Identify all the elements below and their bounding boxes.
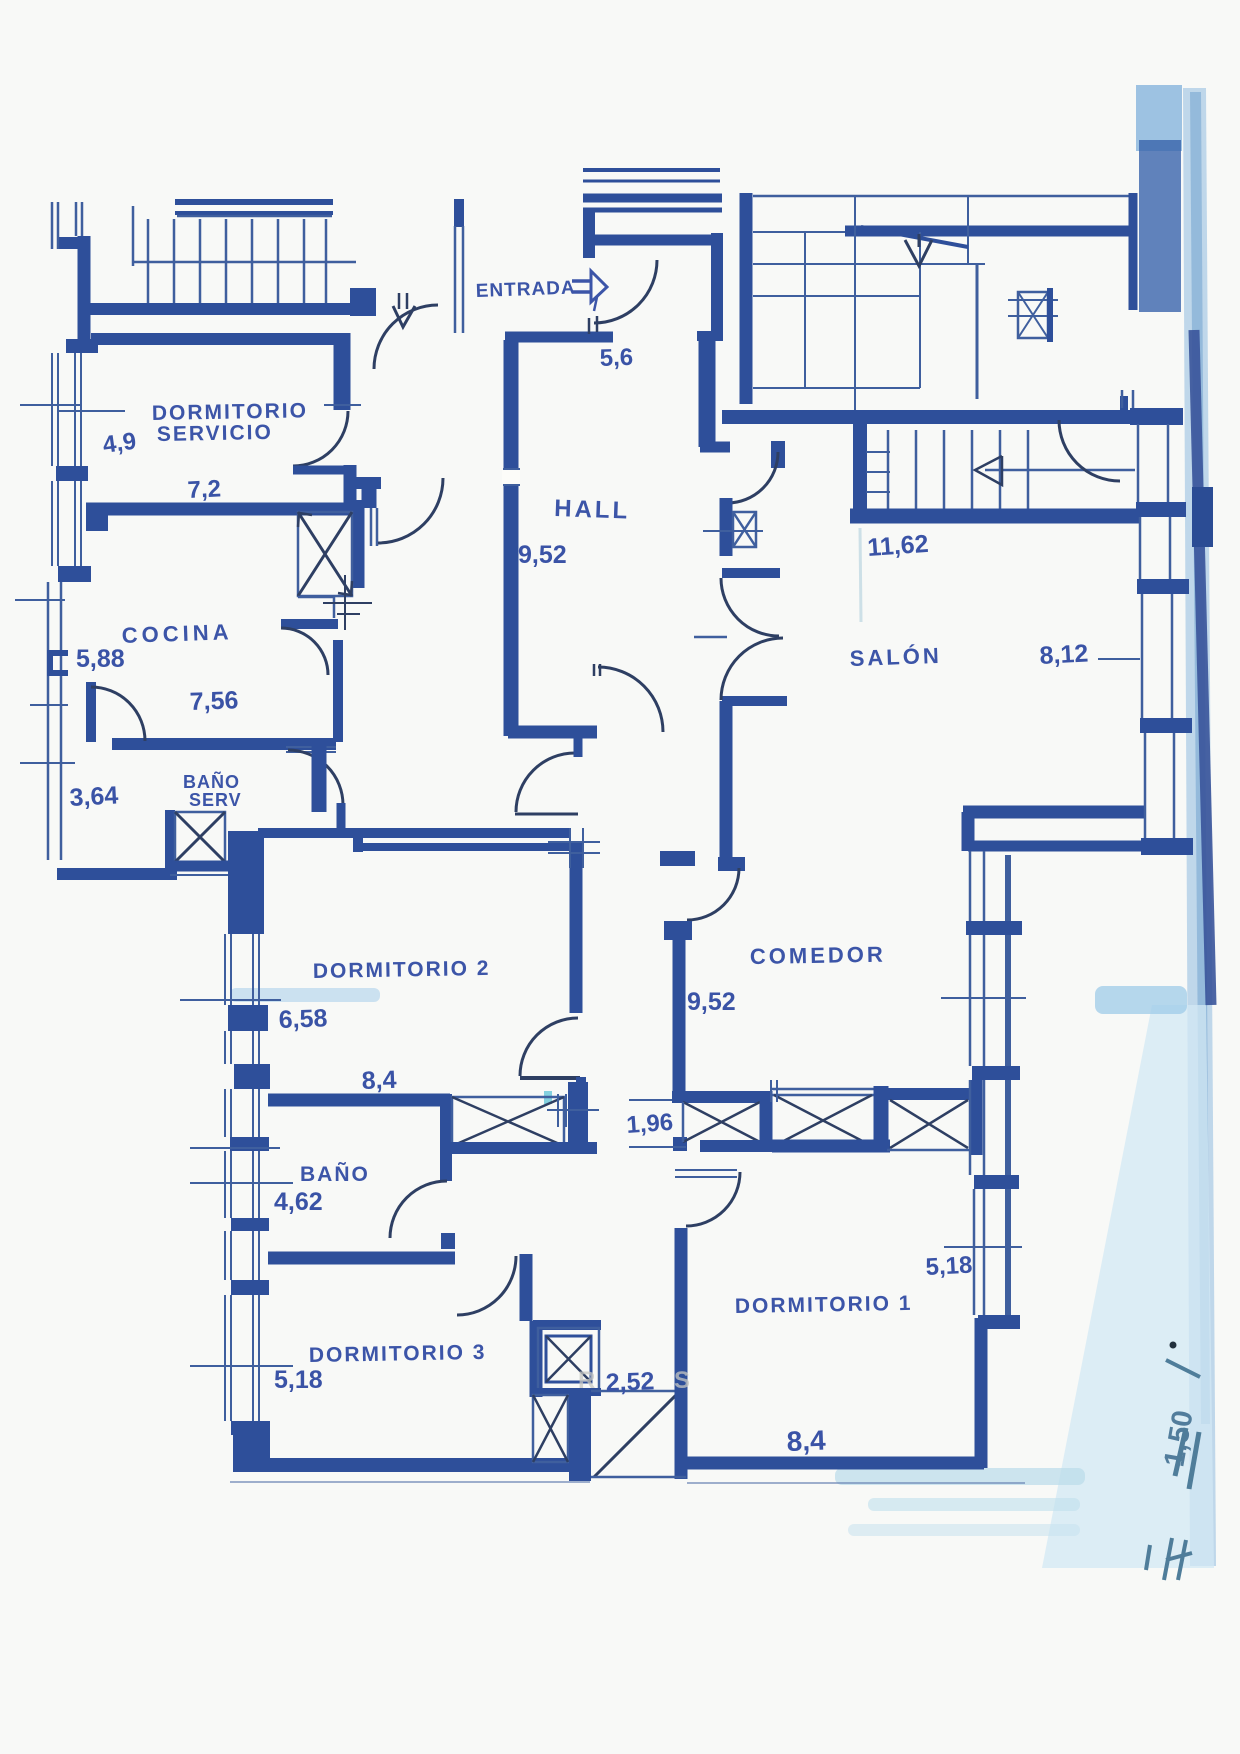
svg-text:2,52: 2,52 [605, 1367, 655, 1397]
svg-text:9,52: 9,52 [687, 988, 736, 1016]
svg-text:1,96: 1,96 [626, 1109, 674, 1139]
svg-text:R: R [578, 1367, 595, 1394]
svg-text:6,58: 6,58 [278, 1004, 328, 1034]
svg-text:DORMITORIO 2: DORMITORIO 2 [313, 957, 491, 983]
svg-text:11,62: 11,62 [866, 530, 929, 562]
svg-text:4,62: 4,62 [274, 1188, 323, 1216]
svg-text:COCINA: COCINA [121, 619, 233, 648]
svg-text:SALÓN: SALÓN [849, 643, 942, 671]
svg-text:3,64: 3,64 [69, 781, 119, 812]
svg-text:HALL: HALL [554, 495, 631, 525]
svg-text:DORMITORIO 1: DORMITORIO 1 [735, 1292, 913, 1318]
svg-text:5,88: 5,88 [76, 645, 125, 673]
svg-text:BAÑO: BAÑO [300, 1163, 370, 1186]
svg-text:8,12: 8,12 [1039, 639, 1089, 670]
svg-text:5,6: 5,6 [599, 344, 633, 372]
svg-text:BAÑO: BAÑO [183, 771, 240, 792]
svg-text:ENTRADA: ENTRADA [475, 278, 576, 302]
svg-text:DORMITORIO 3: DORMITORIO 3 [309, 1341, 487, 1367]
svg-text:COMEDOR: COMEDOR [750, 942, 886, 969]
svg-text:9,52: 9,52 [518, 541, 567, 569]
svg-text:7,56: 7,56 [189, 686, 239, 716]
svg-text:7,2: 7,2 [187, 475, 222, 504]
svg-text:SERVICIO: SERVICIO [157, 421, 273, 446]
svg-text:4,9: 4,9 [101, 428, 138, 459]
svg-text:8,4: 8,4 [786, 1425, 826, 1457]
svg-text:SERV: SERV [189, 790, 242, 810]
svg-text:S: S [674, 1367, 690, 1394]
svg-text:5,18: 5,18 [925, 1252, 973, 1281]
svg-text:8,4: 8,4 [361, 1066, 397, 1095]
svg-text:5,18: 5,18 [274, 1366, 323, 1394]
